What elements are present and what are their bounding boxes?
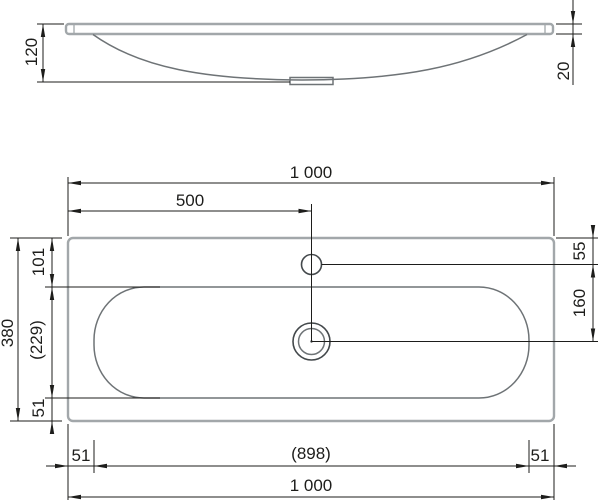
arrowhead xyxy=(571,11,575,24)
arrowhead xyxy=(94,464,107,468)
arrowhead xyxy=(68,495,81,499)
plan-view: 1 000 500 380 101 xyxy=(0,163,598,500)
technical-drawing-canvas: 120 20 xyxy=(0,0,600,504)
arrowhead xyxy=(299,209,312,213)
arrowhead xyxy=(16,408,20,421)
dim-rim-thickness: 20 xyxy=(554,0,582,85)
dim-label-edge-to-bowl: 101 xyxy=(29,248,48,276)
dim-label-bowl-to-edge: 51 xyxy=(29,399,48,418)
arrowhead xyxy=(541,181,554,185)
dim-side-height: 120 xyxy=(22,24,290,82)
washbasin-drawing: 120 20 xyxy=(0,0,600,504)
side-rim-outline xyxy=(66,24,553,34)
arrowhead xyxy=(591,265,595,278)
dim-label-bottom-left-margin: 51 xyxy=(72,446,91,465)
arrowhead xyxy=(50,238,54,251)
arrowhead xyxy=(50,385,54,398)
side-drain-fitting xyxy=(290,78,333,85)
arrowhead xyxy=(541,495,554,499)
dim-plan-width-bottom: 1 000 xyxy=(68,476,554,499)
dim-label-edge-to-faucet: 55 xyxy=(570,242,589,261)
arrowhead xyxy=(554,464,567,468)
arrowhead xyxy=(68,209,81,213)
side-bowl-curve xyxy=(93,35,527,81)
dim-label-plan-width-bottom: 1 000 xyxy=(290,476,333,495)
arrowhead xyxy=(591,329,595,342)
dim-right-chain: 55 160 xyxy=(556,225,598,342)
dim-label-rim-thickness: 20 xyxy=(554,62,573,81)
arrowhead xyxy=(68,181,81,185)
dim-label-bottom-right-margin: 51 xyxy=(531,446,550,465)
arrowhead xyxy=(41,69,45,82)
arrowhead xyxy=(16,238,20,251)
side-view: 120 20 xyxy=(22,0,582,85)
arrowhead xyxy=(591,225,595,238)
dim-label-faucet-to-drain: 160 xyxy=(570,289,589,317)
arrowhead xyxy=(571,34,575,47)
dim-label-plan-width-top: 1 000 xyxy=(290,163,333,182)
arrowhead xyxy=(516,464,529,468)
arrowhead xyxy=(50,274,54,287)
dim-label-faucet-offset: 500 xyxy=(176,191,204,210)
arrowhead xyxy=(55,464,68,468)
dim-label-side-height: 120 xyxy=(22,38,41,66)
dim-faucet-offset: 500 xyxy=(68,191,312,213)
dim-label-bowl-width: (898) xyxy=(291,444,331,463)
arrowhead xyxy=(41,24,45,37)
dim-label-bowl-depth: (229) xyxy=(27,320,46,360)
arrowhead xyxy=(50,421,54,434)
arrowhead xyxy=(50,287,54,300)
dim-label-plan-depth: 380 xyxy=(0,319,17,347)
